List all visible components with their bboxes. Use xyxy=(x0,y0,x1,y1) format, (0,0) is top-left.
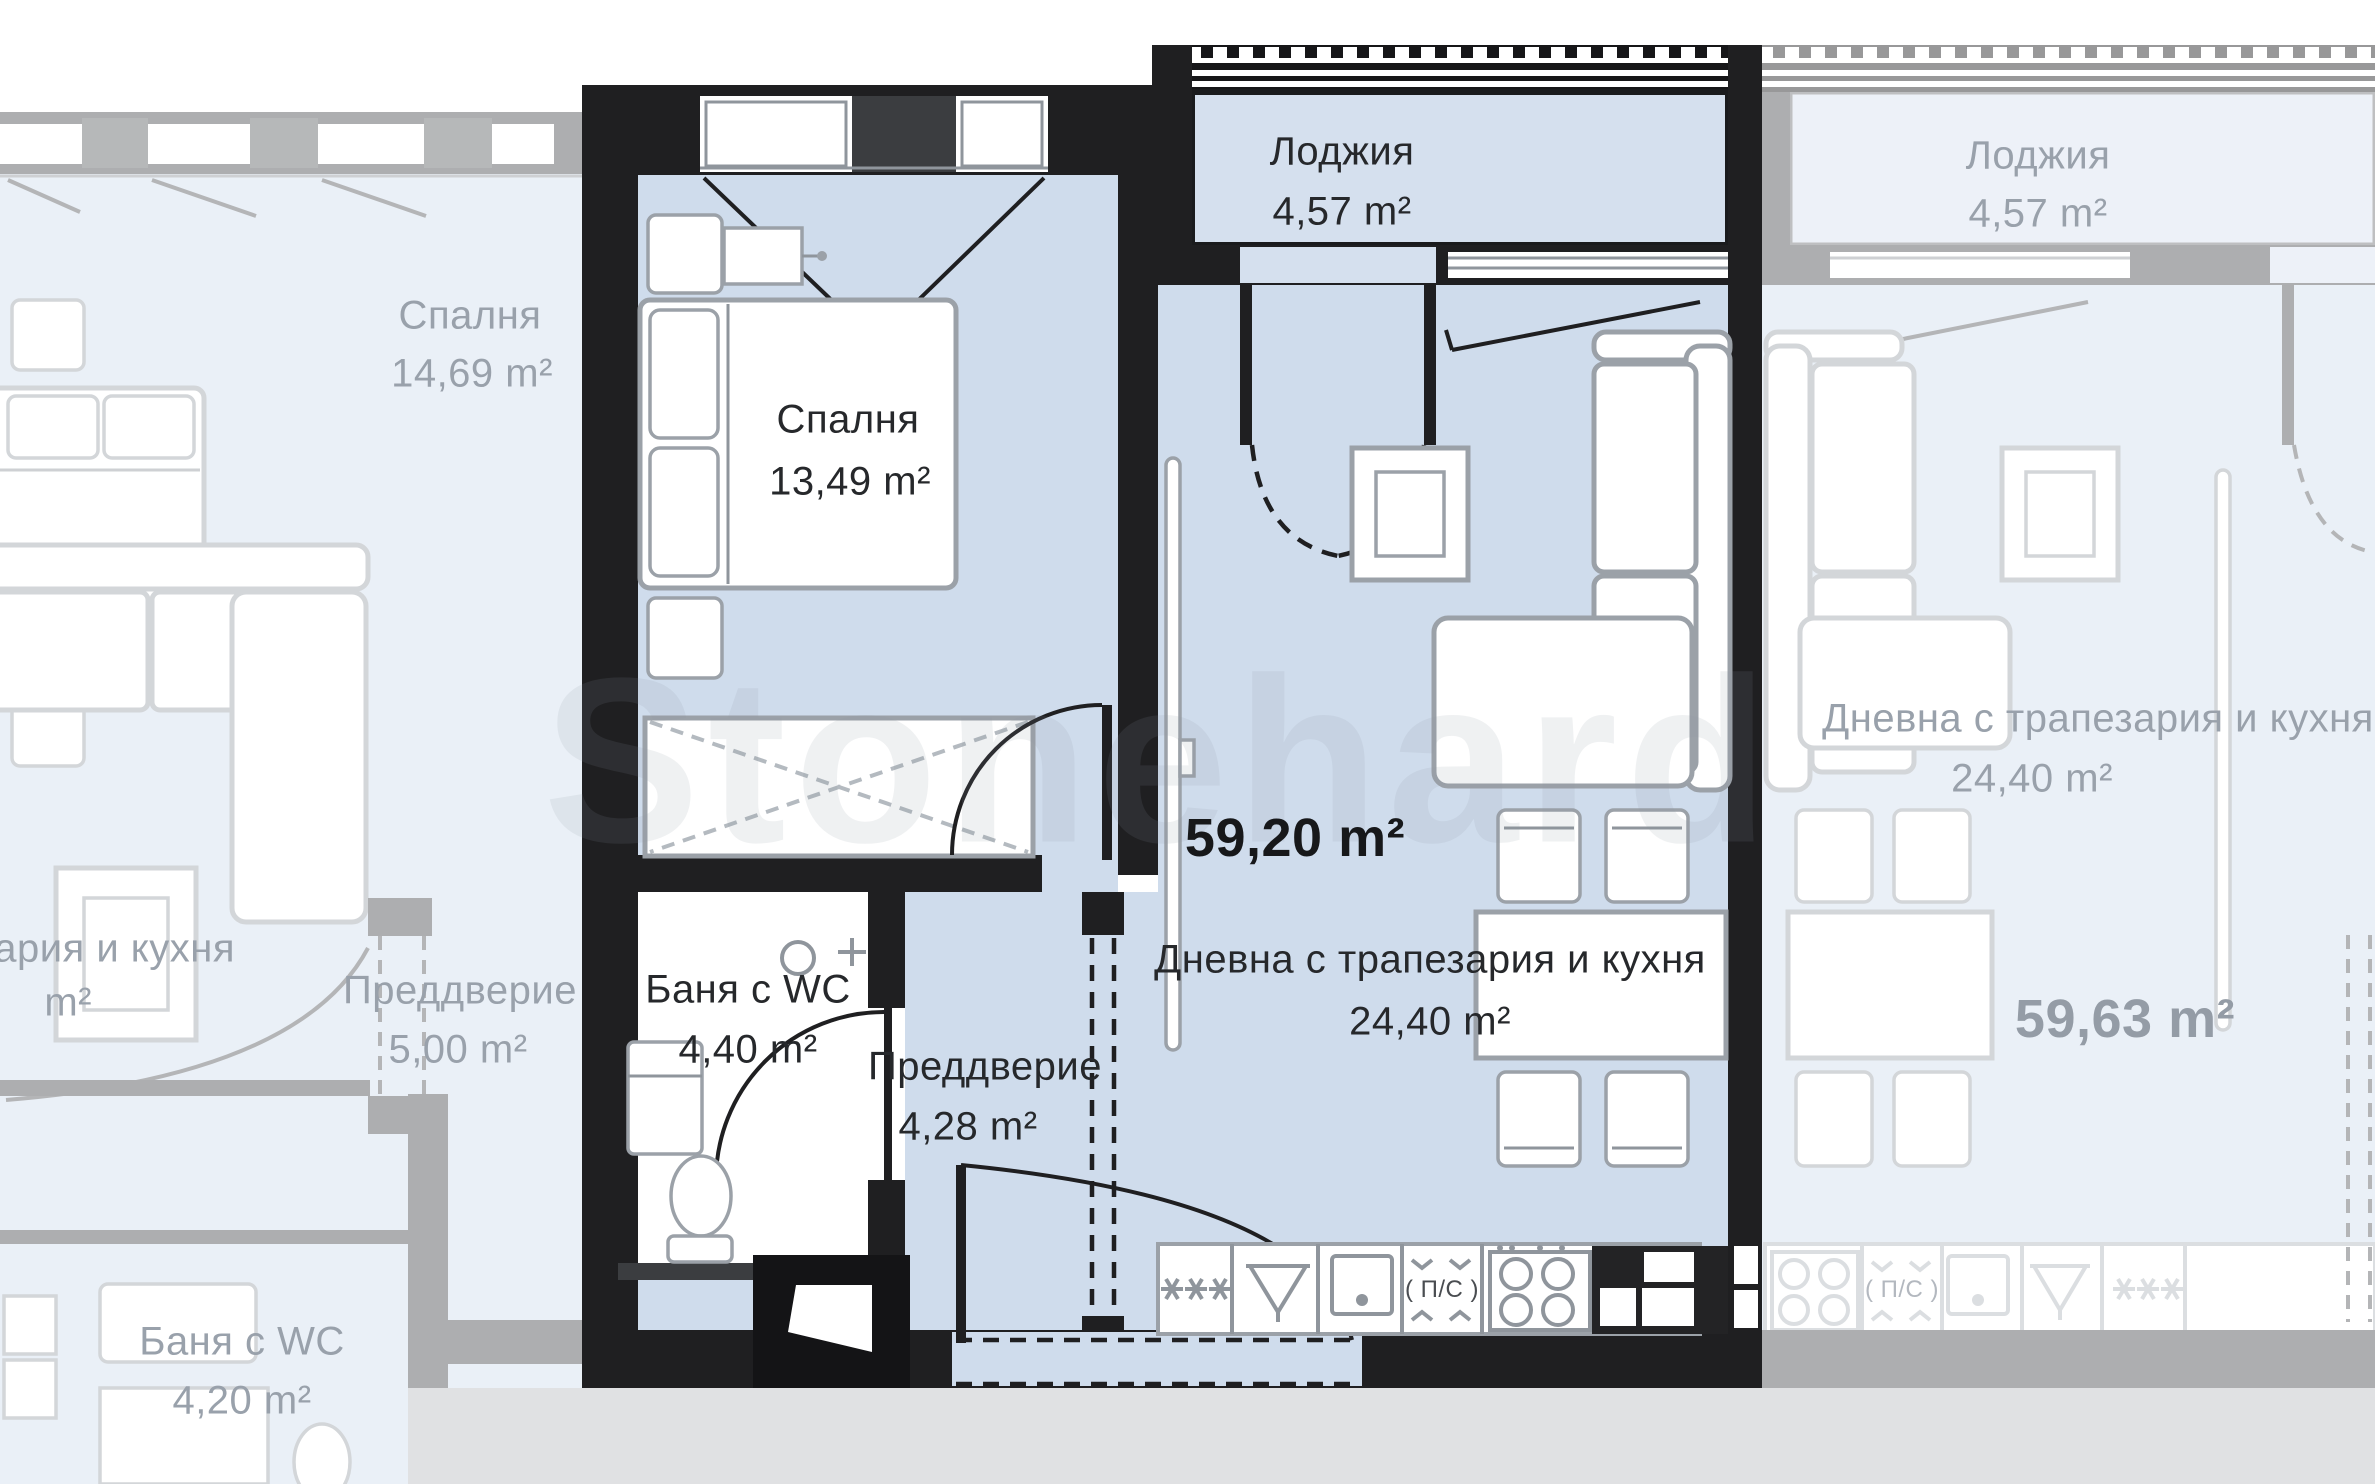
main-dishwasher-label: ( П/С ) xyxy=(1405,1276,1479,1304)
right-living-area: 24,40 m² xyxy=(1951,757,2113,802)
main-living-area: 24,40 m² xyxy=(1349,1000,1511,1045)
watermark: Stonehard xyxy=(543,625,1777,896)
ground-strip xyxy=(408,1388,2375,1484)
left-living-label: ария и кухня xyxy=(0,927,235,972)
left-hallway-label: Преддверие xyxy=(343,969,577,1014)
left-bedroom-area: 14,69 m² xyxy=(391,352,553,397)
left-bathroom-label: Баня с WC xyxy=(139,1320,345,1365)
floor-plan-page: Stonehard Лоджия 4,57 m² Спалня 13,49 m²… xyxy=(0,0,2375,1484)
main-hallway-area: 4,28 m² xyxy=(898,1105,1037,1150)
bed xyxy=(640,300,956,588)
main-bedroom-area: 13,49 m² xyxy=(769,460,931,505)
shaft xyxy=(753,1255,910,1388)
left-bedroom-label: Спалня xyxy=(399,294,542,339)
right-loggia-area: 4,57 m² xyxy=(1968,192,2107,237)
main-total-area: 59,20 m² xyxy=(1185,807,1405,869)
main-living-label: Дневна с трапезария и кухня xyxy=(1154,938,1706,983)
coffee-table xyxy=(1352,448,1468,580)
nightstand xyxy=(648,215,827,293)
left-bathroom-area: 4,20 m² xyxy=(172,1379,311,1424)
right-total-area: 59,63 m² xyxy=(2015,988,2235,1050)
right-living-label: Дневна с трапезария и кухня xyxy=(1822,697,2374,742)
left-fade-overlay xyxy=(0,0,617,1484)
main-bathroom-label: Баня с WC xyxy=(645,968,851,1013)
main-hallway-label: Преддверие xyxy=(868,1045,1102,1090)
main-loggia-area: 4,57 m² xyxy=(1272,190,1411,235)
left-living-area: m² xyxy=(44,981,92,1026)
main-bedroom-label: Спалня xyxy=(777,398,920,443)
right-loggia-label: Лоджия xyxy=(1966,134,2111,179)
main-bathroom-area: 4,40 m² xyxy=(678,1028,817,1073)
toilet xyxy=(668,1156,732,1262)
main-loggia-label: Лоджия xyxy=(1270,130,1415,175)
left-hallway-area: 5,00 m² xyxy=(388,1028,527,1073)
right-dishwasher-label: ( П/С ) xyxy=(1865,1276,1939,1304)
